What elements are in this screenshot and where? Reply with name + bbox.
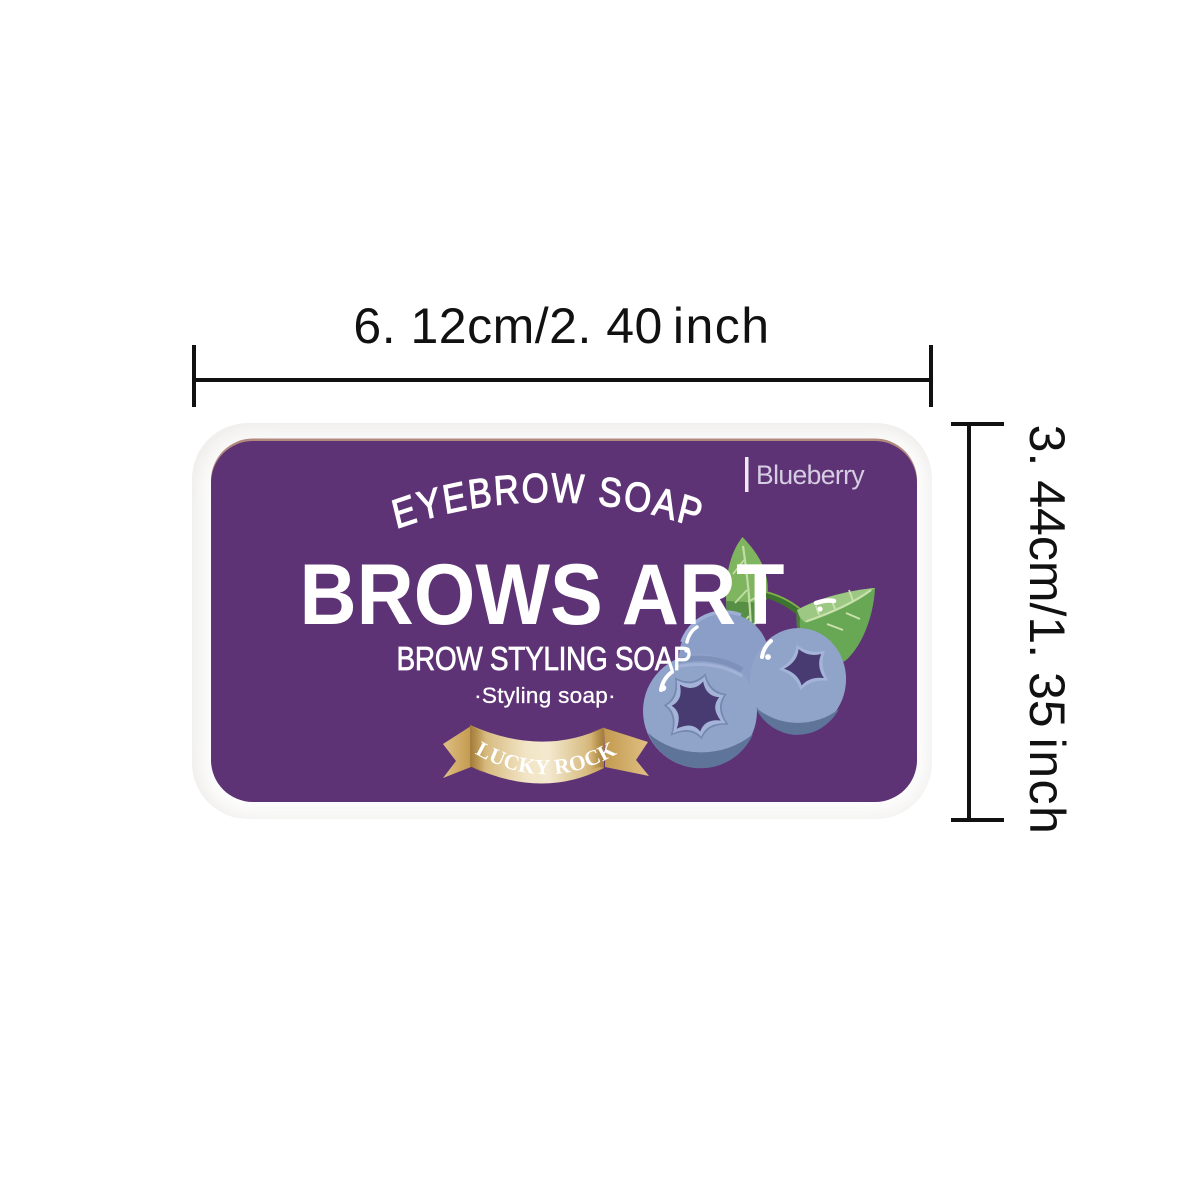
svg-text:Blueberry: Blueberry (756, 460, 865, 490)
svg-text:·Styling soap·: ·Styling soap· (474, 683, 616, 708)
svg-text:BROW STYLING SOAP: BROW STYLING SOAP (397, 641, 692, 678)
svg-text:EYEBROW SOAP: EYEBROW SOAP (388, 466, 708, 538)
svg-text:BROWS ART: BROWS ART (300, 546, 785, 643)
